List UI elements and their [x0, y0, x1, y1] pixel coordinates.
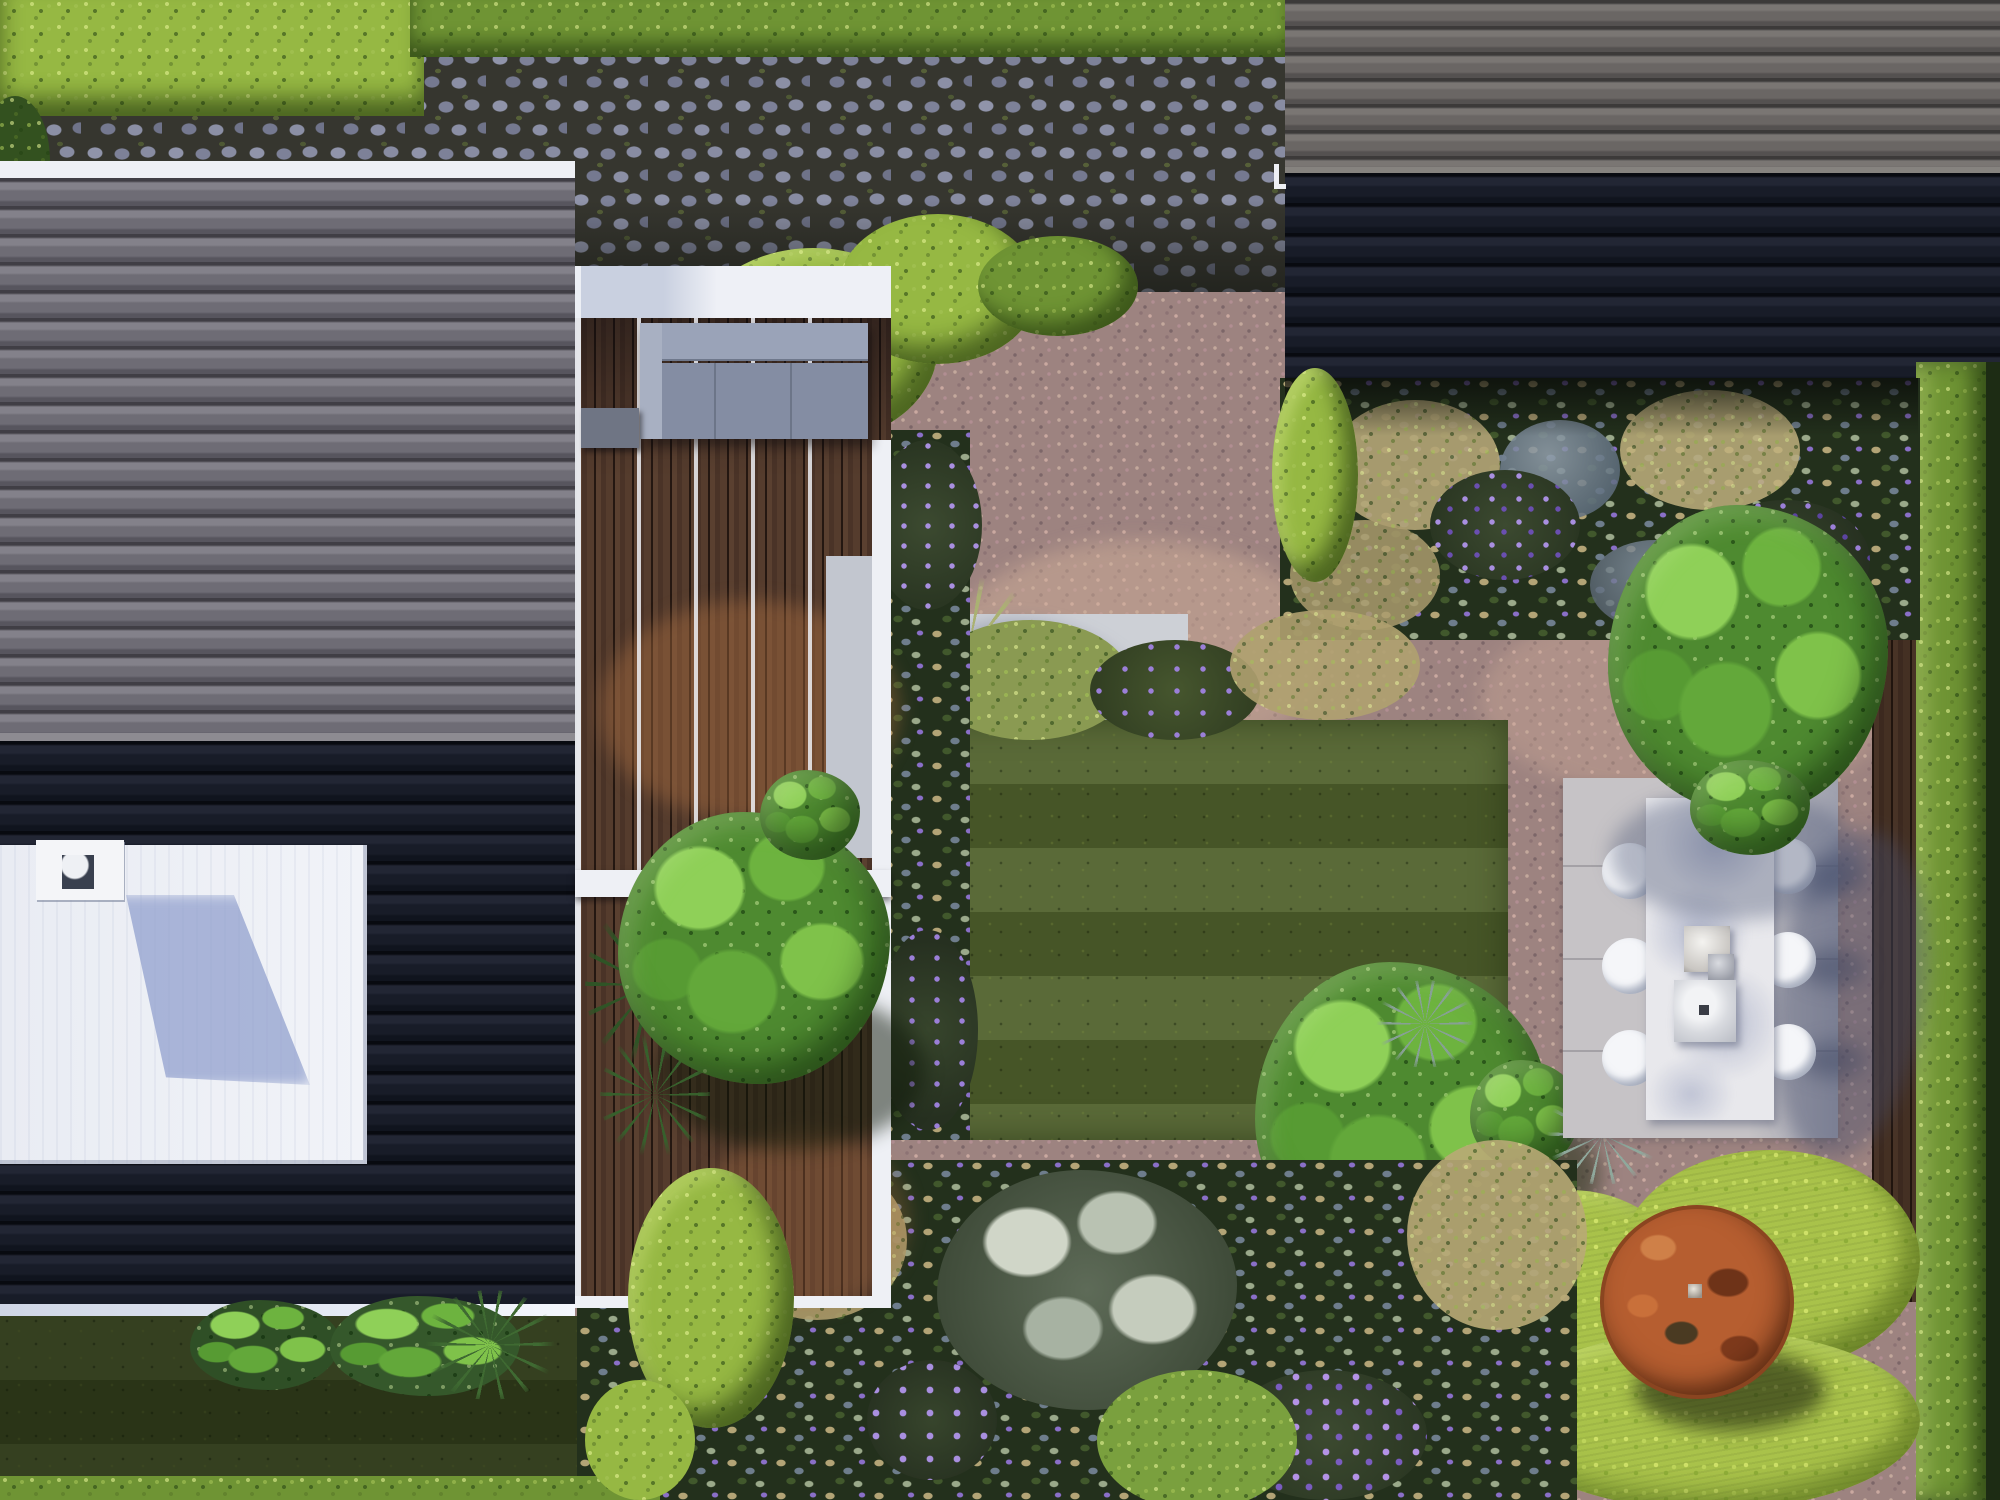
- bottom-grass-tan-2: [1407, 1140, 1587, 1330]
- neighbor-eave-shadow: [1285, 378, 1918, 436]
- neighbor-roof-lower: [1285, 173, 2000, 383]
- chimney-vent: [62, 855, 94, 889]
- cloud-hedge-lobe-3: [978, 236, 1138, 336]
- hedge-mound-bottom-left-2: [585, 1380, 695, 1500]
- flat-roof: [0, 845, 367, 1164]
- hedge-top-strip: [410, 0, 1292, 57]
- aerial-garden-render: [0, 0, 2000, 1500]
- fire-bowl: [1600, 1205, 1794, 1399]
- fern-fronds: [420, 1290, 560, 1400]
- hedge-top-left-block: [0, 0, 424, 116]
- house-gutter-top: [0, 161, 575, 178]
- fire-bowl-drain: [1688, 1284, 1702, 1298]
- neighbor-roof-upper: [1285, 0, 2000, 167]
- lawn-edge-grasses: [1230, 610, 1420, 720]
- deck-top-band: [575, 266, 891, 318]
- house-roof-upper: [0, 178, 575, 735]
- deck-tree: [618, 812, 890, 1084]
- dining-tree-limb: [1690, 760, 1810, 855]
- sofa-seat: [640, 363, 868, 439]
- sofa-arm-left: [640, 323, 662, 439]
- purple-flowers-2: [867, 1360, 997, 1480]
- sofa-seam-2: [790, 363, 792, 439]
- tableware-bowl-2: [1708, 954, 1734, 980]
- bottom-green-mound: [1097, 1370, 1297, 1500]
- sofa-back: [640, 323, 868, 361]
- deck-tree-satellite: [760, 770, 860, 860]
- house-roof-ridge: [0, 733, 575, 741]
- outdoor-sofa: [640, 323, 868, 439]
- bed-lavender-clump-1: [1430, 470, 1580, 580]
- gutter-mark-foot: [1274, 184, 1286, 189]
- sofa-seam-1: [714, 363, 716, 439]
- yucca-rosette-1: [1375, 980, 1475, 1068]
- bottom-hedge-strip: [0, 1476, 660, 1500]
- deck-side-table: [581, 408, 639, 448]
- boundary-hedge-shade-seam: [1986, 362, 2000, 1500]
- mound-hedge: [1272, 368, 1358, 582]
- fern-cluster-1: [190, 1300, 340, 1390]
- tableware-plate-center-dot: [1699, 1005, 1709, 1015]
